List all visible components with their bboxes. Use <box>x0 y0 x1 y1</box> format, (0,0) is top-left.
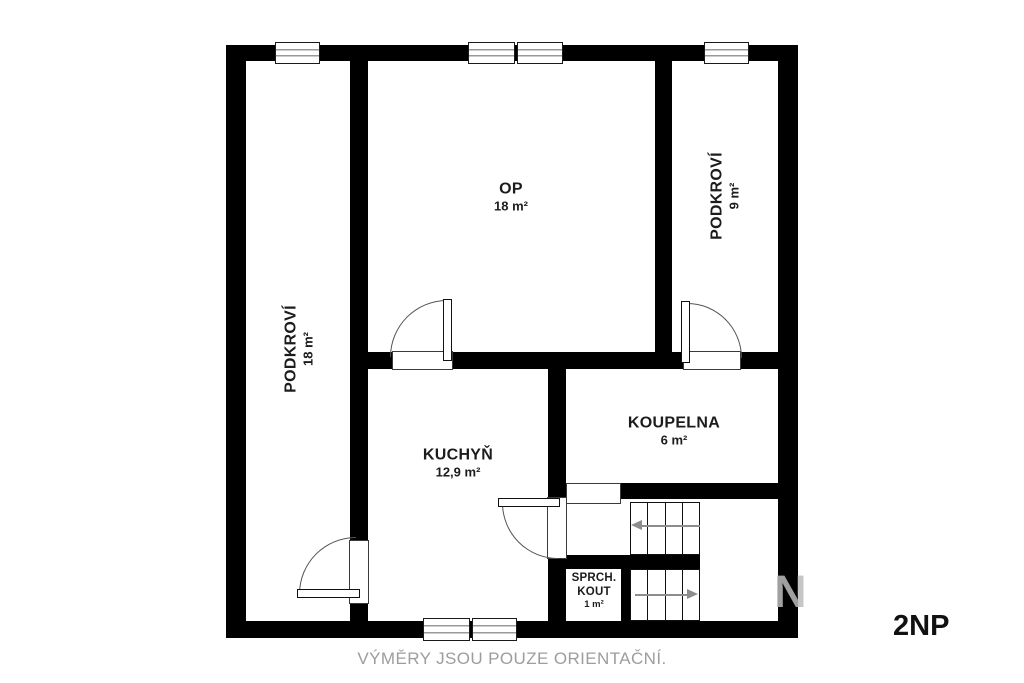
window <box>704 42 749 64</box>
stair-tread <box>648 503 665 554</box>
room-label-kuchyn: KUCHYŇ 12,9 m² <box>423 446 493 481</box>
wall-koupelna-bottom-right <box>620 483 798 499</box>
wall-horizontal-seg2 <box>452 352 684 369</box>
floor-plan: OP 18 m² PODKROVÍ 9 m² PODKROVÍ 18 m² KU… <box>0 0 1024 683</box>
room-area: 9 m² <box>727 152 743 240</box>
door-swing-arc <box>502 503 558 559</box>
stair-arrowhead-left-icon <box>631 520 642 530</box>
wall-outer-right <box>778 45 798 638</box>
room-name: KOUPELNA <box>628 414 720 433</box>
room-name: PODKROVÍ <box>708 152 727 240</box>
wall-kuchyn-koupelna-upper <box>548 352 566 498</box>
room-name: OP <box>494 180 528 199</box>
room-label-op: OP 18 m² <box>494 180 528 215</box>
door-leaf <box>297 589 360 598</box>
stair-arrow-left-icon <box>642 525 700 527</box>
room-label-sprch-kout: SPRCH. KOUT 1 m² <box>562 572 626 610</box>
room-label-podkrovi-right: PODKROVÍ 9 m² <box>708 152 743 240</box>
stair-tread <box>683 503 699 554</box>
stair-arrow-right-icon <box>635 594 688 596</box>
room-area: 18 m² <box>494 199 528 215</box>
room-area: 1 m² <box>562 599 626 610</box>
window <box>472 618 517 641</box>
wall-podkrovi-left-divider-lower <box>350 604 368 621</box>
door-leaf <box>443 299 452 361</box>
door-opening <box>566 483 621 504</box>
door-swing-arc <box>687 303 742 358</box>
room-label-koupelna: KOUPELNA 6 m² <box>628 414 720 449</box>
window <box>517 42 563 64</box>
door-swing-arc <box>390 300 447 357</box>
floor-number-label: 2NP <box>893 610 949 643</box>
watermark-letter: N <box>774 566 807 618</box>
window <box>468 42 515 64</box>
disclaimer-caption: VÝMĚRY JSOU POUZE ORIENTAČNÍ. <box>0 649 1024 669</box>
room-name: KUCHYŇ <box>423 446 493 465</box>
door-leaf <box>681 301 690 363</box>
room-label-podkrovi-left: PODKROVÍ 18 m² <box>282 305 317 393</box>
wall-horizontal-seg1 <box>350 352 393 369</box>
door-swing-arc <box>299 537 356 594</box>
wall-horizontal-seg3 <box>740 352 798 369</box>
window <box>423 618 470 641</box>
window <box>275 42 320 64</box>
wall-sprch-top-stair-band <box>565 555 700 569</box>
stair-tread <box>666 503 683 554</box>
room-area: 12,9 m² <box>423 465 493 481</box>
wall-op-podkrovi-right <box>655 61 672 353</box>
room-name: SPRCH. KOUT <box>562 572 626 599</box>
stair-arrowhead-right-icon <box>687 589 698 599</box>
room-name: PODKROVÍ <box>282 305 301 393</box>
door-leaf <box>498 498 560 507</box>
wall-outer-left <box>226 45 246 638</box>
room-area: 6 m² <box>628 433 720 449</box>
wall-podkrovi-left-divider <box>350 61 368 540</box>
room-area: 18 m² <box>301 305 317 393</box>
